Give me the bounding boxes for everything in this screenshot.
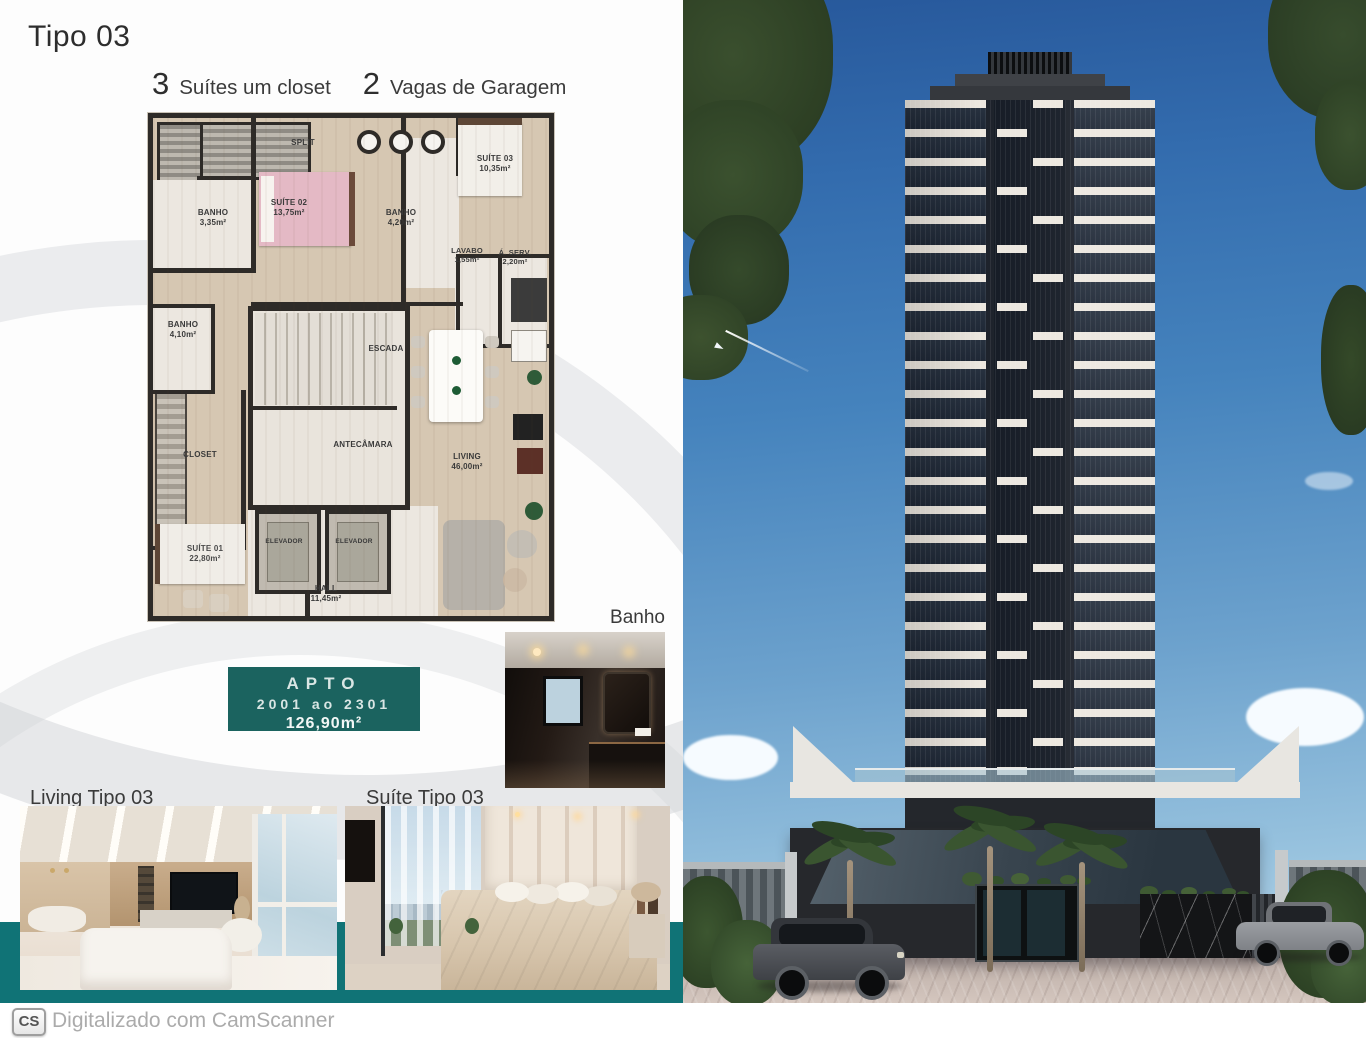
wall (251, 406, 397, 410)
living-photo (20, 806, 337, 990)
wall (251, 118, 256, 270)
page-title: Tipo 03 (28, 20, 130, 54)
room-label-banho3: BANHO 4,10m² (153, 320, 213, 339)
room-label-hall: HALL 11,45m² (291, 584, 361, 603)
apto-title: APTO (228, 674, 420, 694)
window-mullion (258, 902, 337, 907)
cloud (1305, 472, 1353, 490)
suv-wheel (855, 966, 889, 1000)
suites-label: Suítes um closet (179, 76, 331, 100)
wall (153, 390, 215, 394)
wall (498, 258, 502, 346)
room-label-banho1: BANHO 3,35m² (177, 208, 249, 227)
room-label-elevador1: ELEVADOR (255, 538, 313, 546)
bathroom-mirror (603, 672, 651, 734)
tower-left-wing (905, 100, 986, 782)
split-vent (421, 130, 445, 154)
pillows (495, 882, 529, 902)
tv-screen (170, 872, 238, 914)
garage-count: 2 (363, 66, 380, 102)
kitchen-stove (513, 414, 543, 440)
sedan-wheel (1254, 940, 1280, 966)
scanner-footer: CS Digitalizado com CamScanner (0, 1003, 1366, 1038)
wall (211, 304, 215, 394)
sedan-car (1236, 902, 1364, 964)
room-label-suite01: SUÍTE 01 22,80m² (169, 544, 241, 563)
plant (525, 502, 543, 520)
bathroom-ceiling (505, 632, 665, 668)
bed-folds (441, 890, 657, 990)
room-label-closet: CLOSET (165, 450, 235, 460)
palm-trunk (1079, 862, 1085, 972)
apto-area: 126,90m² (228, 715, 420, 733)
media-console (140, 910, 232, 928)
palm-tree (941, 806, 1037, 972)
armchair (507, 530, 537, 558)
wall (197, 176, 255, 180)
terrace-band (790, 782, 1300, 798)
camscanner-icon: CS (12, 1008, 46, 1036)
window-mullion (282, 814, 286, 966)
tower-center-column (994, 100, 1066, 782)
room-label-banho2: BANHO 4,20m² (363, 208, 439, 227)
kitchen-counter (511, 278, 547, 322)
floor-plan: SPLIT SUÍTE 03 10,35m² BANHO 3,35m² SUÍT… (148, 113, 554, 621)
garage-label: Vagas de Garagem (390, 76, 566, 100)
suite-photo (345, 806, 670, 990)
bed-suite02-headboard (349, 172, 355, 246)
tower-right-wing (1074, 100, 1155, 782)
ceiling-spot (533, 648, 541, 656)
dining-table-far (28, 906, 86, 932)
pendant-lights (50, 868, 55, 873)
suites-count: 3 (152, 66, 169, 102)
cloud (1246, 688, 1364, 746)
room-label-suite03: SUÍTE 03 10,35m² (453, 154, 537, 173)
camscanner-text: Digitalizado com CamScanner (52, 1009, 334, 1033)
room-label-suite02: SUÍTE 02 13,75m² (249, 198, 329, 217)
room-label-split: SPLIT (273, 138, 333, 148)
bed-suite01-headboard (155, 524, 160, 584)
suite-tv (345, 820, 375, 882)
dried-flowers (631, 882, 661, 902)
unit-stats: 3 Suítes um closet 2 Vagas de Garagem (152, 66, 566, 102)
split-vent (357, 130, 381, 154)
nightstand (629, 914, 665, 958)
palm-trunk (987, 846, 993, 972)
suite01-chairs (183, 590, 203, 608)
tree-foliage (1315, 80, 1366, 190)
staircase (255, 313, 393, 405)
bed-suite03-headboard (458, 118, 522, 125)
bathroom-photo (505, 632, 665, 788)
bathroom-window (543, 676, 583, 726)
bathroom-floor-glow (505, 760, 665, 788)
wall (153, 304, 215, 308)
white-sofa (80, 928, 232, 990)
sedan-wheel (1326, 940, 1352, 966)
window-frame (381, 806, 385, 956)
dining-table (429, 330, 483, 422)
tower-pillar (986, 100, 994, 782)
cloud (683, 735, 778, 780)
elevator-cab (337, 522, 379, 582)
palm-tree (1033, 824, 1129, 972)
room-label-escada: ESCADA (349, 344, 423, 354)
kitchen-cabinet (517, 448, 543, 474)
window-plant (389, 918, 403, 934)
ceiling-spots (515, 812, 520, 817)
pouf (503, 568, 527, 592)
tower-pillar (1066, 100, 1074, 782)
room-label-aserv: Á. SERV. 2,20m² (483, 248, 547, 266)
roof-sail-left (793, 726, 855, 784)
bathroom-towel (635, 728, 651, 736)
banho-photo-label: Banho (540, 607, 665, 629)
sofa (443, 520, 505, 610)
wall (153, 268, 256, 273)
room-label-living: LIVING 46,00m² (431, 452, 503, 471)
apto-range: 2001 ao 2301 (228, 696, 420, 712)
room-label-antecamara: ANTECÂMARA (311, 440, 415, 450)
table-plant (452, 356, 461, 365)
suv-car (753, 918, 905, 996)
living-window (252, 814, 337, 966)
crown-louvers (988, 52, 1072, 76)
elevator-cab (267, 522, 309, 582)
room-label-elevador2: ELEVADOR (325, 538, 383, 546)
suv-headlight (897, 952, 904, 958)
building-render: LEG (683, 0, 1366, 1003)
elevator-shaft (255, 510, 321, 594)
tree-foliage (1321, 285, 1366, 435)
vase (637, 900, 645, 914)
suv-window (779, 924, 865, 946)
plant (527, 370, 542, 385)
kitchen-sink (511, 330, 547, 362)
brochure-page: Tipo 03 3 Suítes um closet 2 Vagas de Ga… (0, 0, 1366, 1038)
elevator-shaft (325, 510, 391, 594)
split-vent (389, 130, 413, 154)
suv-wheel (775, 966, 809, 1000)
apartment-info-box: APTO 2001 ao 2301 126,90m² (228, 667, 420, 731)
